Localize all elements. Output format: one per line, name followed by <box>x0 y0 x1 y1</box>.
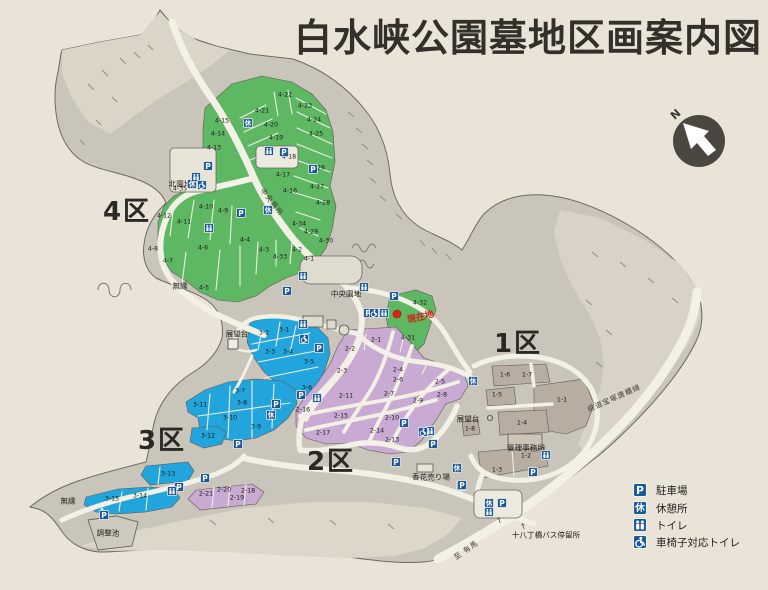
plot-label: 1-3 <box>492 467 502 474</box>
svg-text:P: P <box>530 468 536 477</box>
plot-label: 4-32 <box>413 300 427 307</box>
parking-icon: P <box>429 440 438 449</box>
plot-label: 4-2 <box>292 247 302 254</box>
plot-label: 3-14 <box>133 493 147 500</box>
svg-text:P: P <box>401 419 407 428</box>
plot-label: 4-24 <box>307 117 321 124</box>
plot-label: 2-18 <box>241 488 255 495</box>
plot-label: 2-20 <box>217 487 231 494</box>
plot-label: 2-4 <box>393 367 403 374</box>
plot-label: 3-7 <box>235 388 245 395</box>
rest-icon: 休 <box>485 498 494 507</box>
plot-label: 2-1 <box>371 337 381 344</box>
plot-label: 4-28 <box>316 200 330 207</box>
toilet-icon <box>299 320 308 329</box>
parking-icon: P <box>458 481 467 490</box>
plot-label: 1-5 <box>492 392 502 399</box>
toilet-icon <box>205 224 214 233</box>
place-label: 無縁 <box>60 496 76 506</box>
parking-icon: P <box>201 474 210 483</box>
parking-icon: P <box>390 292 399 301</box>
plot-label: 4-7 <box>163 258 173 265</box>
place-label: 展望台 <box>457 414 480 424</box>
plot-label: 4-20 <box>264 122 278 129</box>
plot-label: 4-27 <box>310 184 324 191</box>
parking-icon: P <box>100 511 109 520</box>
legend-label-parking: 駐車場 <box>656 484 688 497</box>
svg-text:休: 休 <box>453 463 461 472</box>
zone-label-1区: 1区 <box>494 329 542 359</box>
place-label: 中央園地 <box>331 289 362 299</box>
facility-building-2 <box>327 320 336 329</box>
plot-label: 2-10 <box>385 415 399 422</box>
plot-label: 1-4 <box>517 420 527 427</box>
plot-label: 3-11 <box>193 402 207 409</box>
parking-icon: P <box>234 440 243 449</box>
parking-icon: P <box>297 391 306 400</box>
signboard-photo: 白水峡公園墓地区画案内図 <box>0 0 768 590</box>
svg-text:P: P <box>273 400 279 409</box>
parking-icon: P <box>280 148 289 157</box>
viewpoint-marker-west <box>228 339 238 349</box>
plot-label: 3-2 <box>259 330 269 337</box>
plot-label: 1-1 <box>557 397 567 404</box>
legend-label-rest: 休憩所 <box>656 502 688 515</box>
plot-label: 4-10 <box>199 204 213 211</box>
plot-label: 4-21 <box>255 108 269 115</box>
plot-label: 2-2 <box>345 346 355 353</box>
place-label: 展望台 <box>226 329 249 339</box>
plot-label: 2-21 <box>199 491 213 498</box>
parking-icon: P <box>529 468 538 477</box>
parking-icon: P <box>272 400 281 409</box>
toilet-icon <box>299 272 308 281</box>
rest-icon: 休 <box>453 463 462 472</box>
wheelchair-icon <box>634 536 647 549</box>
plot-label: 4-6 <box>198 245 208 252</box>
svg-text:P: P <box>316 344 322 353</box>
plot-label: 2-15 <box>334 413 348 420</box>
plot-label: 1-8 <box>465 426 475 433</box>
plot-label: 4-8 <box>148 246 158 253</box>
plot-label: 4-3 <box>259 247 269 254</box>
svg-text:P: P <box>281 148 287 157</box>
plot-label: 2-19 <box>230 495 244 502</box>
place-label: 十八丁橋バス停留所 <box>512 530 581 540</box>
plot-label: 4-5 <box>199 285 209 292</box>
plot-label: 4-22 <box>278 92 292 99</box>
svg-text:P: P <box>176 483 182 492</box>
plot-label: 2-14 <box>370 428 384 435</box>
plot-label: 2-8 <box>437 392 447 399</box>
svg-text:休: 休 <box>469 376 477 385</box>
plot-label: 4-4 <box>240 237 250 244</box>
plot-label: 2-16 <box>296 407 310 414</box>
plot-label: 4-9 <box>218 208 228 215</box>
map-title: 白水峡公園墓地区画案内図 <box>294 16 762 60</box>
plot-label: 2-6 <box>393 377 403 384</box>
current-location-dot <box>393 310 401 318</box>
toilet-icon <box>634 519 647 532</box>
zone-label-4区: 4区 <box>103 197 151 227</box>
flower-shop-building <box>417 464 433 472</box>
plot-label: 3-5 <box>304 359 314 366</box>
plot-label: 2-17 <box>316 430 330 437</box>
toilet-icon <box>265 147 274 156</box>
legend-row-parking: P 駐車場 <box>634 484 688 498</box>
plot-label: 2-5 <box>435 379 445 386</box>
plot-label: 4-19 <box>269 135 283 142</box>
wheelchair-icon <box>300 335 309 344</box>
plot-label: 2-3 <box>337 368 347 375</box>
plot-label: 2-9 <box>413 398 423 405</box>
plot-label: 4-13 <box>207 145 221 152</box>
legend-row-toilet: トイレ <box>634 519 688 533</box>
plot-label: 4-11 <box>177 219 191 226</box>
parking-icon: P <box>315 344 324 353</box>
plot-label: 4-15 <box>215 118 229 125</box>
zone-label-2区: 2区 <box>307 447 355 477</box>
parking-icon: P <box>498 499 507 508</box>
parking-icon: P <box>309 165 318 174</box>
parking-icon: P <box>204 162 213 171</box>
svg-text:P: P <box>636 484 644 497</box>
plot-label: 4-33 <box>273 254 287 261</box>
svg-text:P: P <box>205 162 211 171</box>
plot-label: 3-9 <box>251 424 261 431</box>
plot-label: 3-4 <box>283 349 293 356</box>
toilet-icon <box>634 519 647 532</box>
rest-icon: 休 <box>264 205 273 214</box>
plot-label: 1-7 <box>522 372 532 379</box>
parking-icon: P <box>400 419 409 428</box>
plot-label: 3-13 <box>161 471 175 478</box>
wheelchair-icon <box>419 428 428 437</box>
svg-text:P: P <box>391 292 397 301</box>
parking-icon: P <box>634 484 647 498</box>
plot-label: 3-3 <box>265 349 275 356</box>
toilet-icon <box>360 283 369 292</box>
plot-label: 4-29 <box>304 229 318 236</box>
parking-icon: P <box>634 484 647 498</box>
plot-label: 3-10 <box>223 415 237 422</box>
wheelchair-icon <box>370 309 379 318</box>
parking-icon: P <box>237 209 246 218</box>
svg-text:P: P <box>235 440 241 449</box>
toilet-icon <box>380 309 389 318</box>
place-label: 調整池 <box>97 528 120 538</box>
plot-label: 4-23 <box>298 103 312 110</box>
svg-text:P: P <box>430 440 436 449</box>
legend-row-rest: 休 休憩所 <box>634 502 688 516</box>
svg-text:P: P <box>298 391 304 400</box>
legend-label-wheelchair: 車椅子対応トイレ <box>656 536 740 549</box>
place-label: 香花売り場 <box>412 472 450 482</box>
plot-label: 4-25 <box>309 131 323 138</box>
svg-text:P: P <box>101 511 107 520</box>
plot-label: 2-13 <box>385 437 399 444</box>
zone-label-3区: 3区 <box>138 426 186 456</box>
plot-label: 4-34 <box>292 221 306 228</box>
svg-text:休: 休 <box>267 410 275 419</box>
svg-text:休: 休 <box>634 502 645 514</box>
svg-text:P: P <box>459 481 465 490</box>
svg-text:P: P <box>238 209 244 218</box>
plot-label: 3-8 <box>237 400 247 407</box>
svg-text:P: P <box>393 458 399 467</box>
svg-text:休: 休 <box>244 118 252 127</box>
plot-label: 1-2 <box>521 453 531 460</box>
svg-text:P: P <box>284 287 290 296</box>
plot-label: 1-6 <box>500 372 510 379</box>
svg-text:休: 休 <box>485 498 493 507</box>
plot-label: 4-16 <box>283 188 297 195</box>
toilet-icon <box>168 487 177 496</box>
plot-label: 2-11 <box>339 393 353 400</box>
wheelchair-icon <box>634 536 647 549</box>
facility-building-3 <box>339 325 349 335</box>
plot-label: 4-1 <box>304 256 314 263</box>
plot-label: 3-12 <box>201 433 215 440</box>
plot-label: 4-31 <box>401 335 415 342</box>
plot-label: 2-7 <box>384 391 394 398</box>
plot-label: 4-14 <box>211 131 225 138</box>
rest-icon: 休 <box>244 118 253 127</box>
rest-icon: 休 <box>634 502 647 515</box>
place-label: 無縁 <box>172 281 188 291</box>
plot-label: 4-17 <box>276 172 290 179</box>
cemetery-map: 白水峡公園墓地区画案内図 <box>0 0 768 590</box>
parking-icon: P <box>283 287 292 296</box>
place-label: 管理事務所 <box>507 443 545 453</box>
svg-text:P: P <box>499 499 505 508</box>
plot-label: 3-1 <box>279 327 289 334</box>
toilet-icon <box>542 451 551 460</box>
parking-icon: P <box>392 458 401 467</box>
wheelchair-icon <box>198 181 207 190</box>
plot-label: 4-30 <box>319 238 333 245</box>
plot-label: 3-15 <box>105 496 119 503</box>
plot-label: 4-12 <box>157 213 171 220</box>
svg-text:P: P <box>310 165 316 174</box>
rest-area-icon: 休 <box>634 502 647 515</box>
toilet-icon <box>313 394 322 403</box>
svg-text:休: 休 <box>264 205 272 214</box>
svg-text:P: P <box>202 474 208 483</box>
toilet-icon <box>485 508 494 517</box>
rest-icon: 休 <box>267 410 276 419</box>
legend-label-toilet: トイレ <box>656 520 688 532</box>
rest-icon: 休 <box>469 376 478 385</box>
